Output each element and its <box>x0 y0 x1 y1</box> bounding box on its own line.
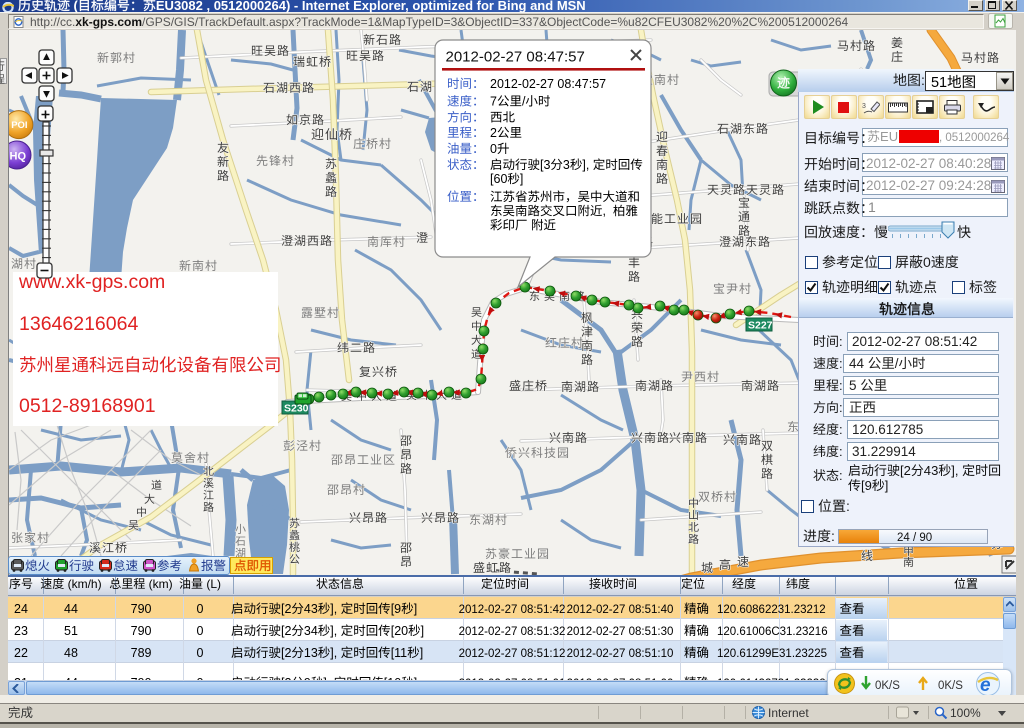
svg-text:0: 0 <box>490 142 497 156</box>
svg-text:[60: [60 <box>490 172 507 186</box>
svg-text:HQ: HQ <box>10 151 27 163</box>
svg-text:0512-89168901: 0512-89168901 <box>19 395 156 417</box>
svg-text:3: 3 <box>563 158 570 172</box>
svg-text:,: , <box>603 204 613 218</box>
svg-text:2012-02-27 08:47:57: 2012-02-27 08:47:57 <box>446 49 585 66</box>
svg-text:7: 7 <box>490 95 497 109</box>
svg-text:3: 3 <box>862 103 866 110</box>
svg-text:/: / <box>522 95 526 109</box>
svg-text:2012-02-27 08:47:57: 2012-02-27 08:47:57 <box>490 77 606 91</box>
svg-text:[3: [3 <box>540 158 550 172</box>
svg-text:13646216064: 13646216064 <box>19 313 138 335</box>
svg-text:POI: POI <box>11 120 27 131</box>
svg-text:],: ], <box>582 158 592 172</box>
svg-text:S227: S227 <box>748 320 773 332</box>
svg-text:2: 2 <box>490 126 497 140</box>
svg-text:]: ] <box>520 172 523 186</box>
